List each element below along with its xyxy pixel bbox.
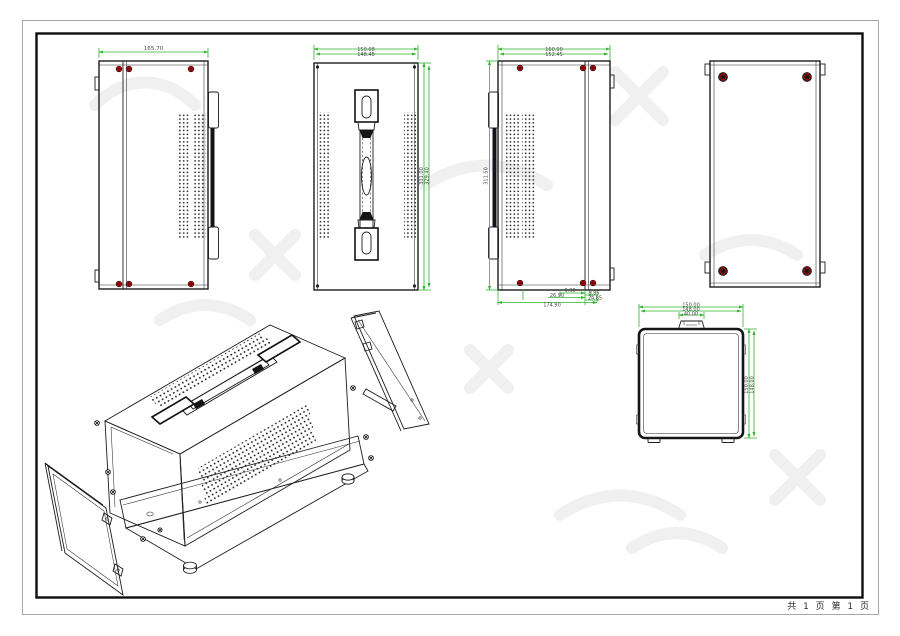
bezel-tab	[102, 513, 112, 525]
mount-tab	[705, 64, 710, 75]
exploded-isometric-view	[45, 311, 429, 595]
rail-bracket	[489, 92, 499, 128]
screw	[369, 456, 374, 461]
dim-height: 311.50	[484, 167, 490, 185]
screw	[364, 435, 369, 440]
dim-bottom-total: 174.90	[543, 303, 561, 309]
dim-width-inner: 148.48	[357, 52, 375, 58]
view-end-cap: 150.00 148.00 40.00 150.00 148.00	[637, 303, 758, 443]
vent-grid	[193, 113, 206, 238]
vent-grid	[404, 112, 416, 240]
vent-grid-side	[198, 404, 316, 505]
rail-bracket	[489, 227, 499, 259]
vent-grid	[319, 112, 331, 240]
view-top-cover: 150.08 148.48	[314, 45, 431, 290]
cad-drawing: 165.70 150.08 148.48	[0, 0, 900, 636]
dim-bottom-mid: 26.90	[550, 293, 564, 299]
chassis-body	[105, 325, 350, 546]
rail-rod	[493, 128, 497, 227]
outer-border	[23, 21, 879, 615]
screw	[351, 386, 356, 391]
mount-tab	[820, 262, 825, 273]
view-rear-panel	[705, 61, 825, 287]
bottom-dimensions: 6.90 26.90 174.90 8.85 24.85	[498, 288, 602, 309]
dim-bottom-right-b: 24.85	[588, 296, 602, 302]
dim-handle: 40.00	[684, 312, 698, 318]
rail-bracket	[209, 227, 219, 259]
screw	[95, 421, 100, 426]
handle-iso	[152, 335, 300, 424]
screw	[158, 528, 162, 532]
vent-grid	[177, 113, 190, 238]
page-footer: 共 1 页 第 1 页	[787, 600, 871, 612]
dim-h2: 148.00	[750, 376, 756, 394]
mount-tab	[820, 64, 825, 75]
dim-bottom-small: 6.90	[564, 288, 575, 294]
mount-tab	[705, 262, 710, 273]
dim-width-label: 165.70	[144, 46, 164, 52]
vent-grid	[522, 113, 535, 238]
screw	[141, 537, 146, 542]
view-side-panel-right: 160.00 152.45 311.50	[484, 45, 615, 309]
dim-width-inner: 152.45	[545, 52, 563, 58]
rubber-foot	[342, 474, 354, 484]
handle-plan	[355, 90, 378, 260]
dim-length-inner: 329.40	[425, 167, 431, 185]
vent-grid	[506, 113, 519, 238]
front-bezel-panel	[45, 463, 123, 595]
rubber-foot	[184, 562, 197, 573]
drawing-sheet: 165.70 150.08 148.48	[0, 0, 900, 636]
rail-bracket	[209, 92, 219, 128]
panel-outline	[710, 61, 820, 287]
screw	[106, 470, 111, 475]
rail-rod	[211, 128, 215, 227]
rear-panel-iso	[351, 311, 429, 431]
screw	[111, 490, 116, 495]
endcap-outline	[639, 329, 743, 438]
